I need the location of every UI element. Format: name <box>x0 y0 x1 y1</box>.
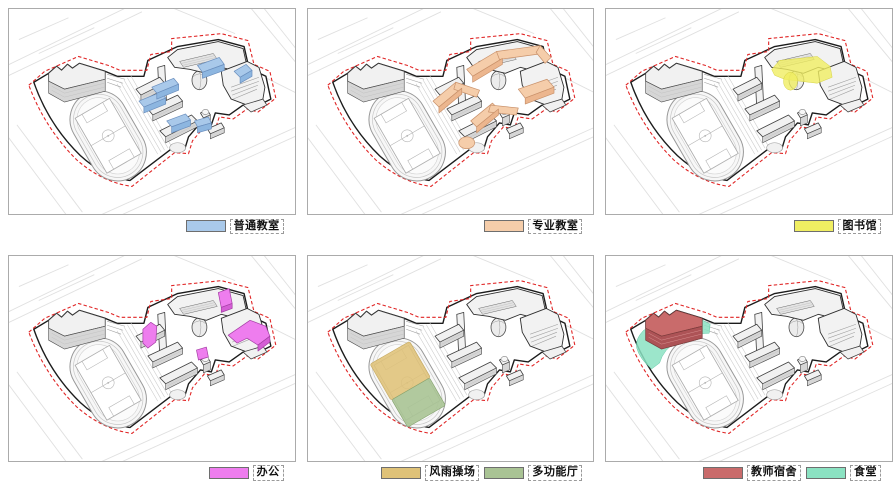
legend-row: 教师宿舍 食堂 <box>605 463 893 484</box>
panel-library: 图书馆 <box>597 0 896 244</box>
legend-entry: 风雨操场 <box>381 465 479 481</box>
panel-frame <box>307 255 595 462</box>
legend-label: 普通教室 <box>230 219 284 235</box>
legend-entry: 多功能厅 <box>484 465 582 481</box>
legend-row: 普通教室 <box>8 216 296 237</box>
legend-row: 风雨操场 多功能厅 <box>307 463 595 484</box>
campus-axonometric <box>606 9 892 214</box>
panel-office: 办公 <box>0 244 299 487</box>
legend-label: 办公 <box>253 465 284 481</box>
legend-label: 风雨操场 <box>425 465 479 481</box>
legend-entry: 办公 <box>209 465 284 481</box>
campus-axonometric <box>9 9 295 214</box>
legend-entry: 专业教室 <box>484 219 582 235</box>
legend-swatch <box>381 467 421 479</box>
diagram-sheet: 普通教室 <box>0 0 896 487</box>
panel-specialized-classrooms: 专业教室 <box>299 0 598 244</box>
legend-entry: 教师宿舍 <box>703 465 801 481</box>
legend-swatch <box>794 220 834 232</box>
panel-frame <box>8 8 296 215</box>
legend-label: 食堂 <box>850 465 881 481</box>
legend-swatch <box>806 467 846 479</box>
panel-frame <box>307 8 595 215</box>
legend-swatch <box>484 220 524 232</box>
panel-frame <box>8 255 296 462</box>
legend-label: 多功能厅 <box>528 465 582 481</box>
campus-axonometric <box>308 9 594 214</box>
campus-axonometric <box>9 256 295 461</box>
legend-swatch <box>209 467 249 479</box>
legend-swatch <box>186 220 226 232</box>
legend-swatch <box>484 467 524 479</box>
panel-frame <box>605 255 893 462</box>
legend-row: 专业教室 <box>307 216 595 237</box>
legend-entry: 普通教室 <box>186 219 284 235</box>
panel-ordinary-classrooms: 普通教室 <box>0 0 299 244</box>
legend-label: 教师宿舍 <box>747 465 801 481</box>
campus-axonometric <box>308 256 594 461</box>
legend-swatch <box>703 467 743 479</box>
legend-entry: 食堂 <box>806 465 881 481</box>
legend-row: 办公 <box>8 463 296 484</box>
legend-label: 图书馆 <box>838 219 881 235</box>
panel-frame <box>605 8 893 215</box>
panel-sports-hall: 风雨操场 多功能厅 <box>299 244 598 487</box>
panel-dorm-canteen: 教师宿舍 食堂 <box>597 244 896 487</box>
legend-row: 图书馆 <box>605 216 893 237</box>
legend-entry: 图书馆 <box>794 219 881 235</box>
legend-label: 专业教室 <box>528 219 582 235</box>
campus-axonometric <box>606 256 892 461</box>
